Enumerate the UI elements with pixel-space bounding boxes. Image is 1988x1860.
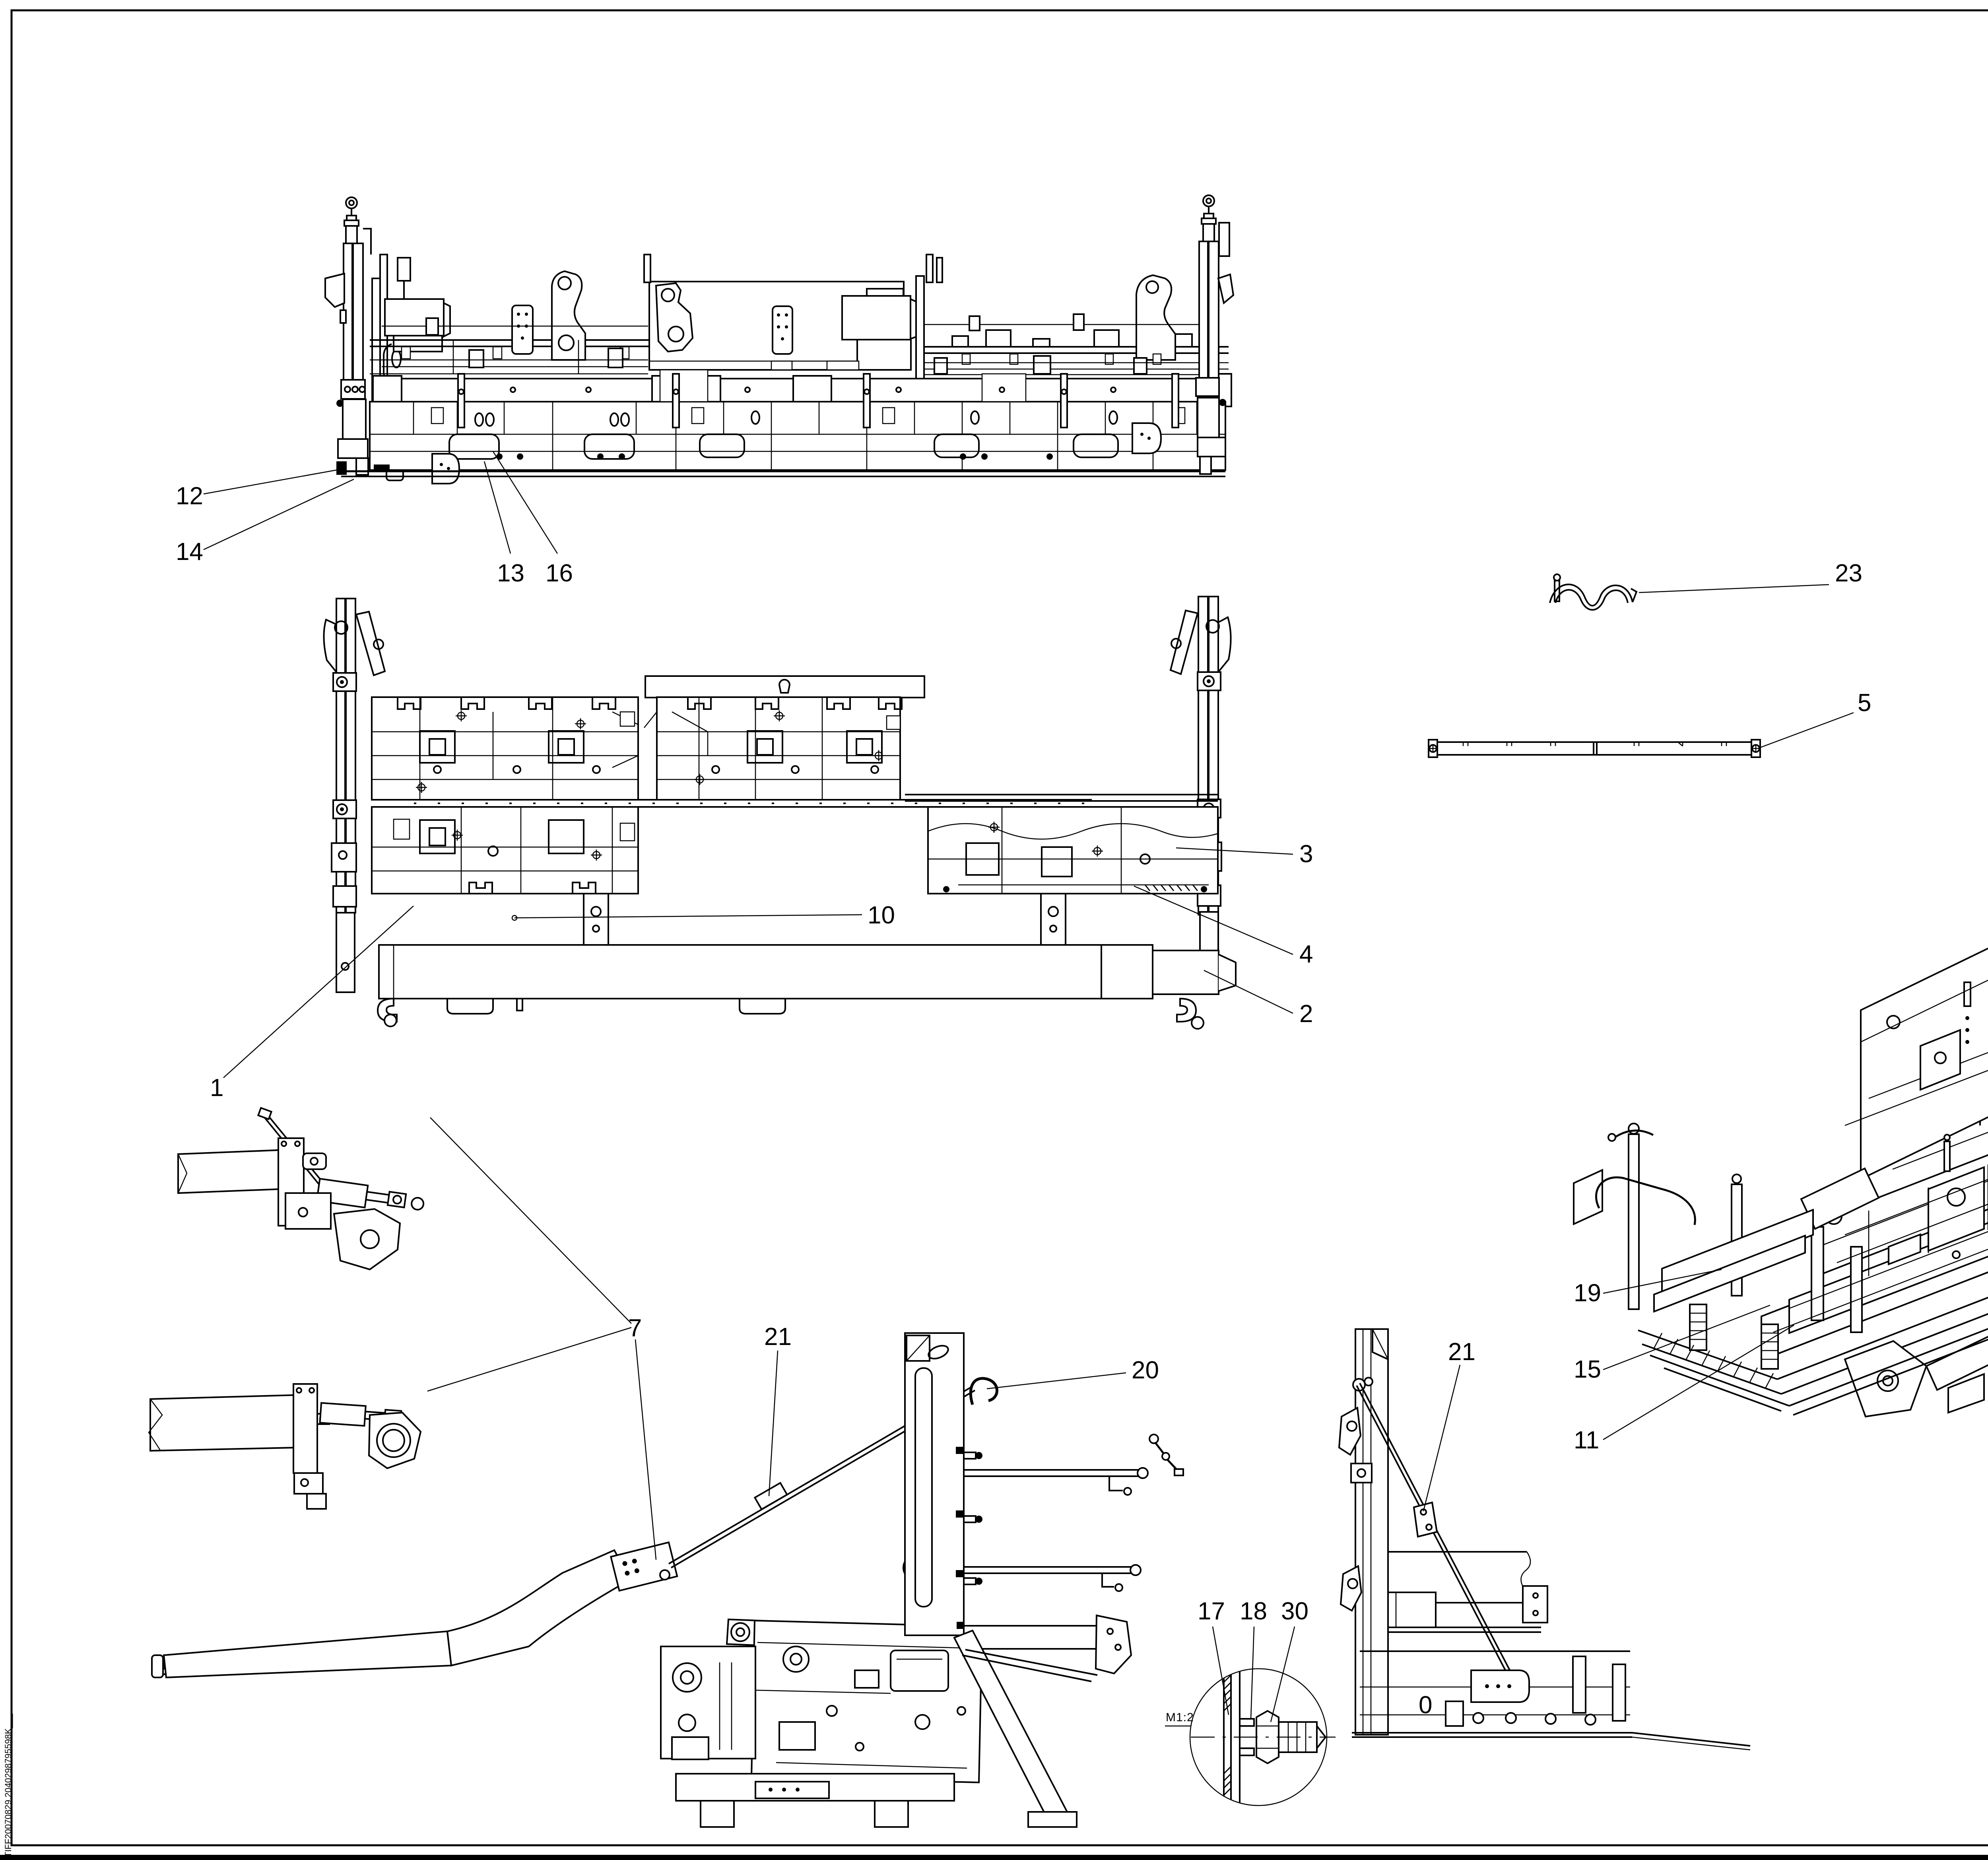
svg-text:1: 1 [210, 1074, 223, 1102]
svg-text:16: 16 [546, 560, 573, 587]
svg-text:13: 13 [497, 560, 524, 587]
svg-text:2: 2 [1299, 1000, 1313, 1028]
svg-text:17: 17 [1198, 1598, 1225, 1625]
svg-text:23: 23 [1835, 560, 1862, 587]
svg-text:21: 21 [1448, 1338, 1475, 1366]
svg-text:10: 10 [868, 902, 895, 929]
svg-text:0: 0 [1419, 1691, 1432, 1719]
svg-text:7: 7 [628, 1314, 642, 1342]
svg-text:19: 19 [1574, 1279, 1601, 1307]
svg-text:TIFF20070829.2040298795598K___: TIFF20070829.2040298795598K___ [3, 1713, 13, 1857]
svg-text:20: 20 [1132, 1357, 1159, 1384]
svg-text:5: 5 [1858, 689, 1871, 717]
svg-text:11: 11 [1574, 1427, 1599, 1454]
svg-text:M1:2: M1:2 [1166, 1711, 1194, 1724]
svg-text:15: 15 [1574, 1356, 1601, 1383]
svg-text:4: 4 [1299, 941, 1313, 968]
svg-text:14: 14 [176, 538, 203, 566]
svg-text:12: 12 [176, 482, 203, 510]
svg-text:18: 18 [1240, 1598, 1267, 1625]
svg-text:21: 21 [764, 1323, 792, 1351]
svg-text:3: 3 [1299, 840, 1313, 868]
svg-text:30: 30 [1281, 1598, 1309, 1625]
